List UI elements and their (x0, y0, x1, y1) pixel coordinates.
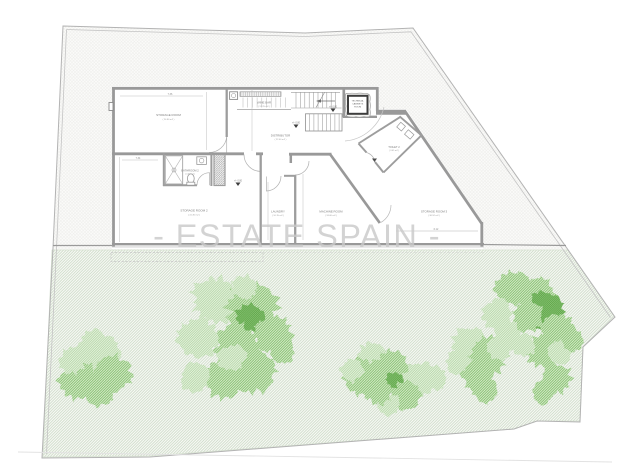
svg-text:TECHNICAL: TECHNICAL (351, 100, 364, 103)
svg-text:7.34: 7.34 (136, 157, 141, 160)
svg-text:( 22.40 m2 ): ( 22.40 m2 ) (275, 139, 287, 141)
svg-text:+/- 0.00: +/- 0.00 (292, 123, 301, 125)
svg-text:( 24.80 m2 ): ( 24.80 m2 ) (163, 119, 175, 121)
svg-text:( 3.65 m2 ): ( 3.65 m2 ) (389, 150, 399, 152)
svg-text:STORAGE ROOM 2: STORAGE ROOM 2 (180, 209, 208, 213)
svg-text:MACHINE ROOM: MACHINE ROOM (319, 210, 343, 214)
svg-text:7.36: 7.36 (168, 93, 173, 96)
svg-text:( 36.52 m2 ): ( 36.52 m2 ) (428, 215, 440, 217)
svg-text:TOILET 2: TOILET 2 (388, 145, 400, 149)
svg-text:+/- 0.00: +/- 0.00 (234, 181, 243, 183)
svg-text:STORAGE ROOM: STORAGE ROOM (156, 113, 181, 117)
svg-text:BATHROOM 2: BATHROOM 2 (181, 168, 199, 172)
svg-text:ROOM: ROOM (354, 107, 361, 109)
svg-text:STORAGE ROOM 3: STORAGE ROOM 3 (421, 210, 448, 214)
svg-text:( 41.35 m2 ): ( 41.35 m2 ) (188, 215, 200, 217)
svg-text:WINE BAR: WINE BAR (257, 101, 271, 105)
svg-text:( 10.15 m2 ): ( 10.15 m2 ) (272, 215, 284, 217)
svg-text:+/- 0.00: +/- 0.00 (329, 107, 338, 109)
svg-text:( 18.60 m2 ): ( 18.60 m2 ) (325, 215, 337, 217)
svg-text:( 12.25 m2 ): ( 12.25 m2 ) (258, 106, 270, 108)
svg-text:CABINETS: CABINETS (352, 103, 363, 106)
svg-text:- ESTATE SPAIN -: - ESTATE SPAIN - (153, 218, 441, 254)
svg-text:DISTRIBUTOR: DISTRIBUTOR (271, 134, 291, 138)
svg-text:LAUNDRY: LAUNDRY (271, 210, 285, 214)
